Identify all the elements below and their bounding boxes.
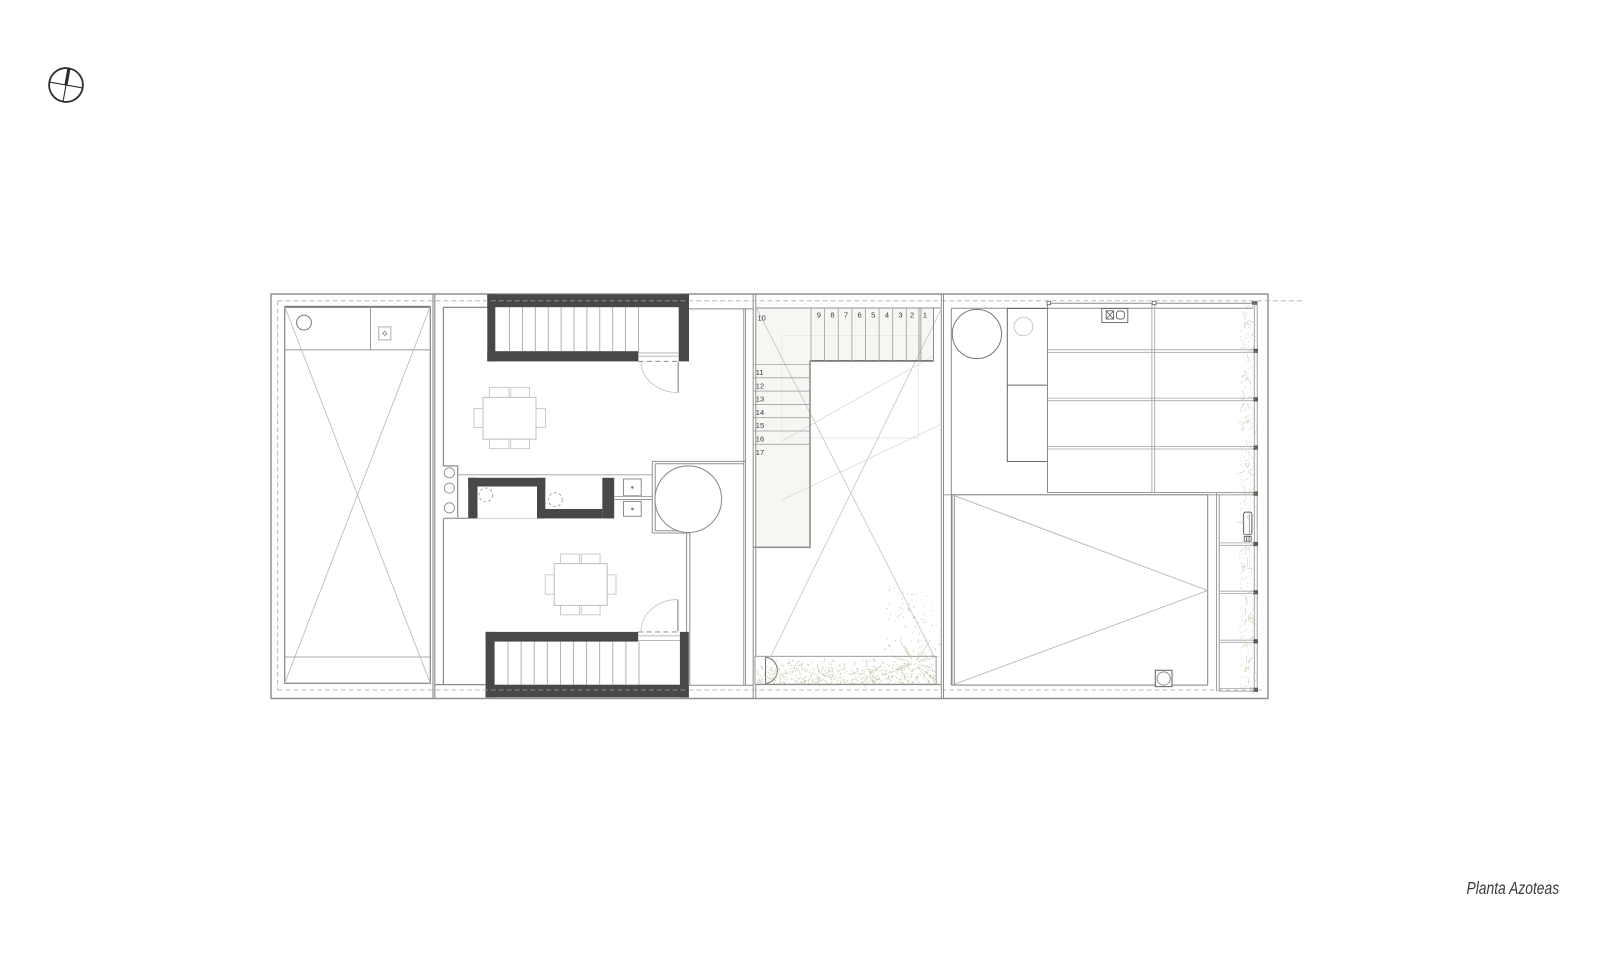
svg-text:13: 13 (756, 395, 764, 404)
svg-text:Planta Azoteas: Planta Azoteas (1467, 878, 1560, 898)
svg-text:7: 7 (844, 311, 848, 320)
svg-text:15: 15 (756, 421, 764, 430)
svg-text:6: 6 (858, 311, 862, 320)
svg-text:12: 12 (756, 381, 764, 390)
svg-text:10: 10 (758, 314, 766, 323)
svg-text:11: 11 (756, 368, 764, 377)
svg-text:2: 2 (910, 311, 914, 320)
svg-text:8: 8 (830, 311, 834, 320)
svg-text:4: 4 (885, 311, 889, 320)
svg-text:17: 17 (756, 448, 764, 457)
svg-text:1: 1 (923, 311, 927, 320)
svg-text:14: 14 (756, 408, 764, 417)
svg-text:9: 9 (817, 311, 821, 320)
svg-text:16: 16 (756, 435, 764, 444)
svg-text:3: 3 (898, 311, 902, 320)
svg-text:5: 5 (871, 311, 875, 320)
